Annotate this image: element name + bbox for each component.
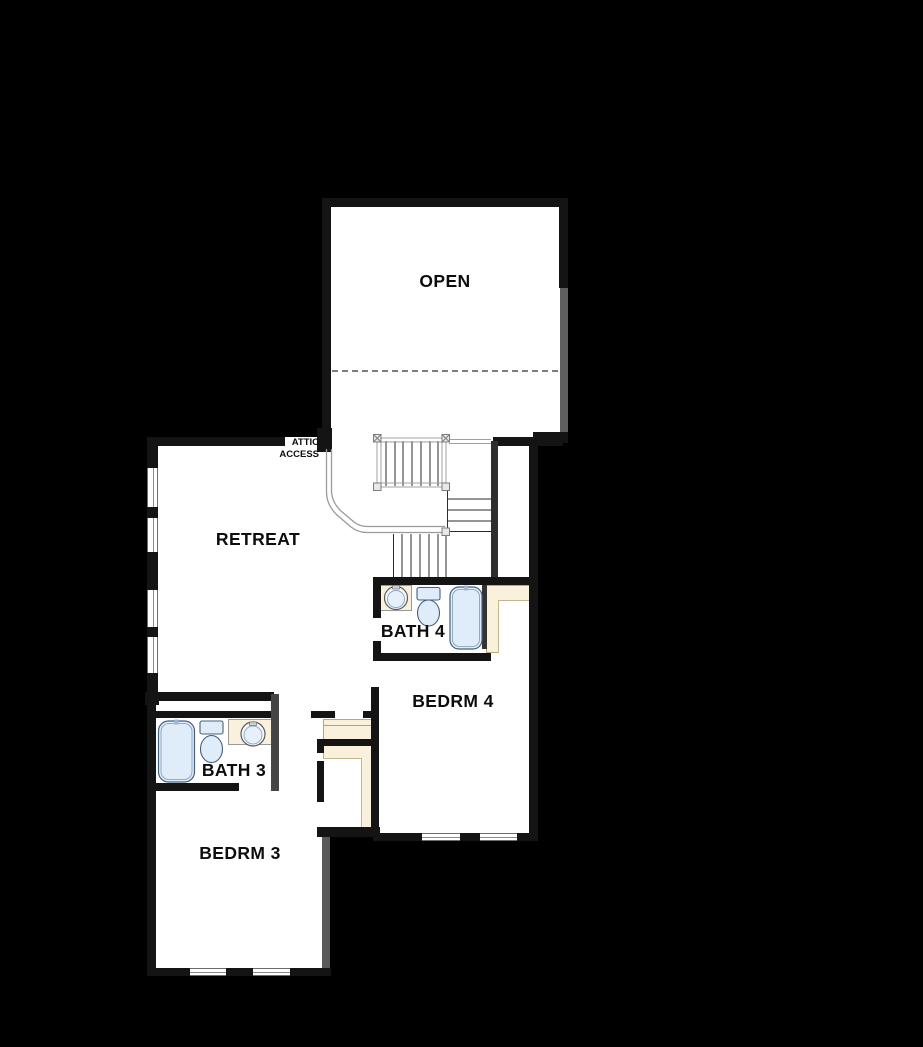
window-glass-line	[153, 590, 154, 627]
floor-bedrm4	[373, 655, 529, 835]
window-bedrm4-1	[422, 833, 460, 841]
wall-open-right-lower	[560, 288, 568, 434]
window-bedrm3-1	[190, 968, 226, 976]
window-bedrm3-2	[253, 968, 290, 976]
wall-closet-divider	[317, 739, 377, 746]
window-retreat-1	[147, 468, 158, 507]
closet-bath4	[486, 585, 533, 653]
room-bath3-label: BATH 3	[174, 760, 294, 781]
toilet-icon	[200, 721, 223, 763]
stair-upper-flight	[386, 441, 438, 486]
room-retreat-label: RETREAT	[168, 529, 348, 550]
window-glass-line	[153, 518, 154, 552]
wall-retreat-top	[150, 437, 285, 446]
closet-bath4-interior	[498, 600, 533, 653]
sink-icon	[241, 722, 265, 746]
window-glass-line	[480, 837, 517, 838]
wall-closet-left-jamb	[317, 746, 324, 753]
wall-open-right-upper	[559, 198, 568, 288]
wall-bedrm3-topright	[317, 827, 380, 837]
stair-winder-treads	[447, 488, 491, 534]
stair-upper-railing	[377, 438, 491, 487]
window-glass-line	[153, 468, 154, 507]
wall-bedrm3-bottom	[147, 968, 331, 976]
wall-mid-right	[371, 711, 379, 835]
closet-shelf-line	[324, 725, 376, 726]
window-glass-line	[253, 972, 290, 973]
wall-open-left	[322, 198, 331, 438]
wall-closet-left	[317, 761, 324, 802]
bath4-fixtures	[373, 577, 493, 657]
open-below-dashed-line	[332, 370, 558, 372]
window-glass-line	[190, 972, 226, 973]
closet-mid-bottom-interior	[323, 758, 362, 832]
window-retreat-4	[147, 637, 158, 673]
attic-access-line2: ACCESS	[267, 449, 319, 461]
wall-exterior-left-lower	[147, 703, 156, 976]
room-bedrm4-label: BEDRM 4	[373, 691, 533, 712]
stair-lower-flight	[394, 534, 447, 577]
window-retreat-3	[147, 590, 158, 627]
stairs-icon	[300, 426, 545, 586]
floor-open-room	[322, 198, 568, 443]
room-bath4-label: BATH 4	[353, 621, 473, 642]
closet-mid-bottom	[323, 745, 377, 830]
window-bedrm4-2	[480, 833, 517, 841]
floorplan-canvas: OPEN RETREAT BATH 4 BEDRM 4 BATH 3 BEDRM…	[0, 0, 923, 1047]
room-open-label: OPEN	[335, 271, 555, 292]
closet-mid-top	[323, 719, 377, 740]
attic-access-line1: ATTIC	[267, 437, 319, 449]
wall-open-top	[322, 198, 568, 207]
window-retreat-2	[147, 518, 158, 552]
window-glass-line	[153, 637, 154, 673]
room-bedrm3-label: BEDRM 3	[160, 843, 320, 864]
wall-retreat-bottom	[158, 692, 274, 701]
window-glass-line	[422, 837, 460, 838]
sink-icon	[385, 586, 408, 610]
attic-access-label: ATTIC ACCESS	[267, 437, 319, 460]
wall-bedrm3-right	[322, 837, 330, 976]
wall-mid-tee-left	[311, 711, 335, 718]
